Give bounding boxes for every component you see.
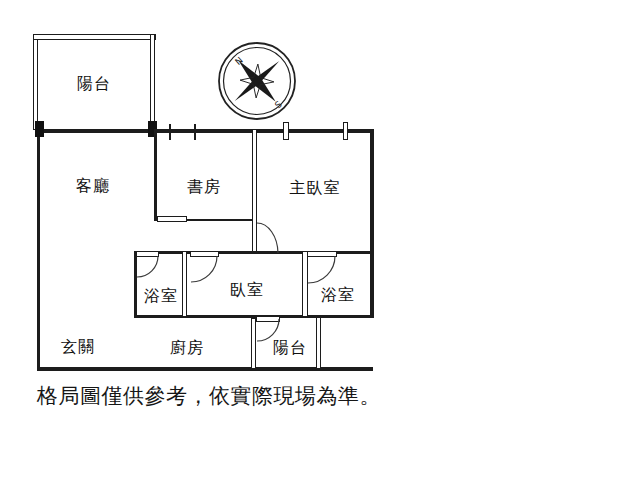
floor-plan: N S 陽台 客廳 書房 主臥室 浴室 臥室 浴室 玄關 廚房 陽台 格局圖僅供… bbox=[0, 0, 640, 480]
window-tick-icon bbox=[169, 124, 171, 140]
compass-north-label: N bbox=[233, 55, 245, 67]
wall-right bbox=[370, 129, 374, 318]
room-label-bathroom-right: 浴室 bbox=[321, 285, 355, 306]
door-frame-balcony-bottom bbox=[256, 316, 280, 322]
wall-left bbox=[37, 129, 40, 371]
compass-icon: N S bbox=[213, 37, 304, 128]
window-balcony2-left bbox=[251, 318, 256, 369]
room-label-living-room: 客廳 bbox=[76, 176, 110, 197]
wall-top bbox=[37, 129, 373, 133]
room-label-kitchen: 廚房 bbox=[170, 338, 204, 359]
door-frame-study bbox=[157, 216, 187, 222]
door-arc-bathroom-right bbox=[308, 256, 335, 283]
disclaimer-text: 格局圖僅供參考，依實際現場為準。 bbox=[37, 382, 381, 410]
compass-needle-ew bbox=[232, 58, 281, 103]
room-label-entryway: 玄關 bbox=[61, 337, 95, 358]
door-arc-bedroom bbox=[191, 256, 217, 282]
room-label-balcony-bottom: 陽台 bbox=[273, 338, 307, 359]
door-frame-bedroom bbox=[190, 251, 219, 257]
wall-study-left bbox=[154, 129, 157, 221]
window-balcony-right bbox=[150, 34, 156, 130]
door-frame-bathroom-right bbox=[307, 251, 337, 258]
column-left bbox=[35, 121, 44, 137]
door-arc-master-bedroom bbox=[257, 223, 278, 253]
room-label-balcony-top: 陽台 bbox=[77, 74, 111, 95]
window-balcony2-right bbox=[316, 317, 321, 369]
window-tick-icon bbox=[194, 124, 196, 140]
wall-bath-bedroom-divider bbox=[182, 251, 188, 317]
window-tick-icon bbox=[283, 122, 289, 140]
wall-bedroom-bath-divider bbox=[302, 251, 308, 317]
window-tick-icon bbox=[343, 122, 349, 140]
room-label-study: 書房 bbox=[187, 177, 221, 198]
room-label-master-bedroom: 主臥室 bbox=[290, 178, 341, 199]
door-arc-bathroom-left bbox=[137, 256, 158, 277]
wall-bottom bbox=[37, 367, 374, 371]
compass-south-label: S bbox=[273, 99, 284, 110]
wall-bath-left-side bbox=[134, 251, 137, 319]
room-label-bathroom-left: 浴室 bbox=[144, 286, 178, 307]
room-label-bedroom: 臥室 bbox=[230, 280, 264, 301]
wall-master-left bbox=[252, 129, 257, 253]
compass-needle-ns bbox=[235, 57, 280, 105]
door-frame-bathroom-left bbox=[136, 251, 159, 257]
compass-star bbox=[240, 64, 274, 98]
window-balcony-left bbox=[33, 34, 39, 130]
window-balcony-top bbox=[33, 34, 156, 40]
